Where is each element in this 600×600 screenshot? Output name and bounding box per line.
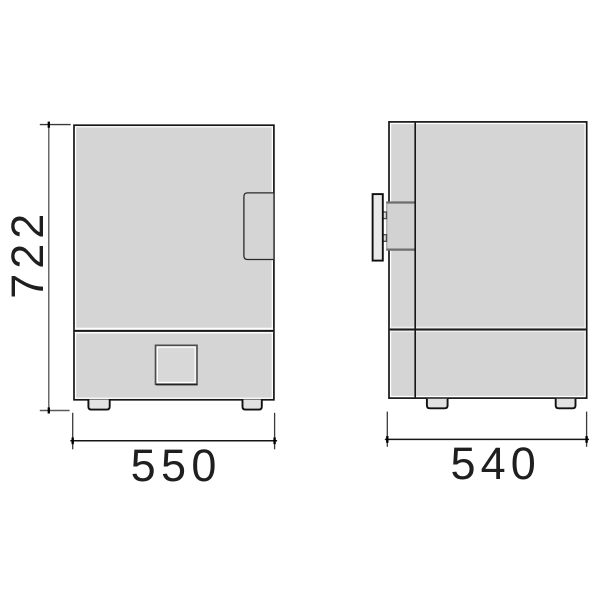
svg-text:540: 540 [450, 438, 535, 489]
svg-text:722: 722 [2, 214, 53, 299]
svg-text:550: 550 [131, 440, 217, 491]
